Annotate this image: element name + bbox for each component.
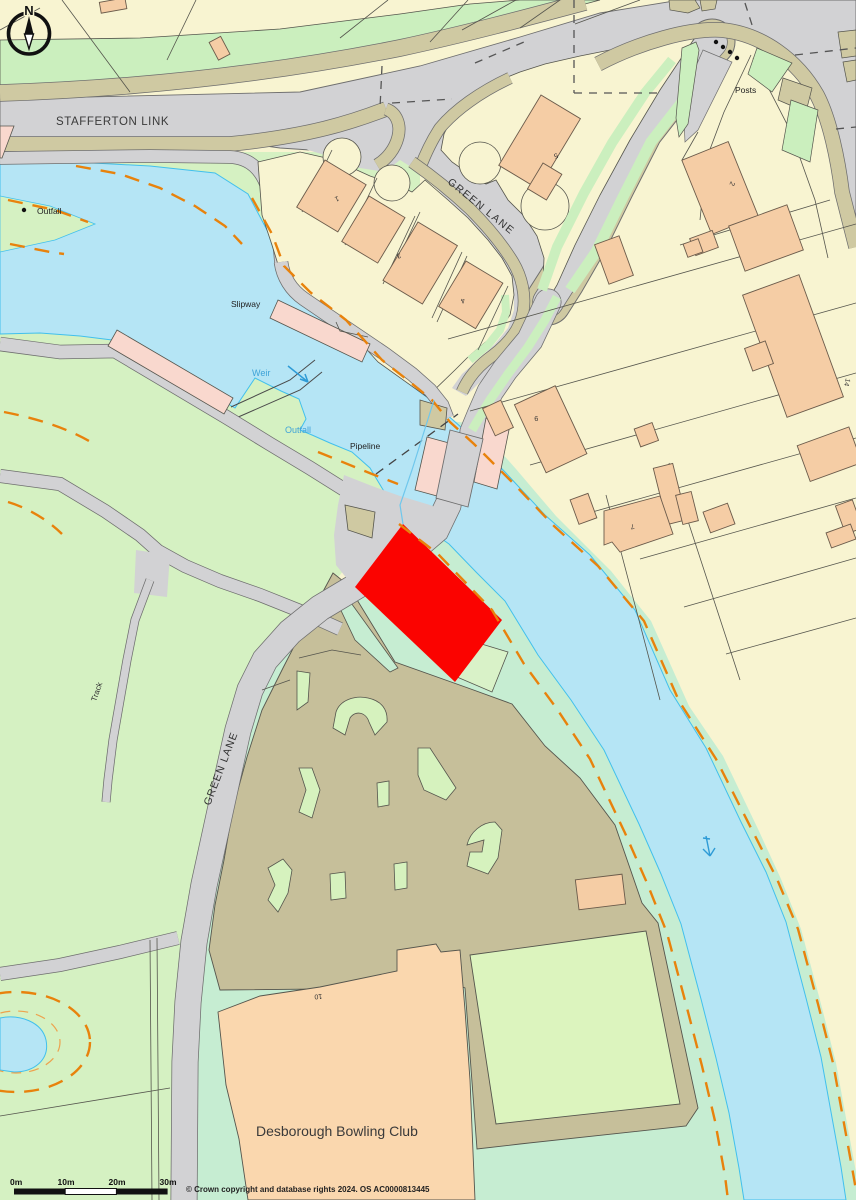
- svg-text:0m: 0m: [10, 1177, 23, 1187]
- svg-text:Posts: Posts: [735, 85, 756, 95]
- svg-text:Outfall: Outfall: [37, 206, 62, 216]
- svg-text:20m: 20m: [108, 1177, 125, 1187]
- svg-text:9: 9: [534, 414, 539, 421]
- svg-text:Pipeline: Pipeline: [350, 441, 381, 451]
- svg-text:Slipway: Slipway: [231, 299, 261, 309]
- svg-text:© Crown copyright and database: © Crown copyright and database rights 20…: [186, 1185, 430, 1194]
- svg-text:Weir: Weir: [252, 368, 270, 378]
- svg-text:STAFFERTON LINK: STAFFERTON LINK: [56, 116, 169, 128]
- svg-text:Desborough Bowling Club: Desborough Bowling Club: [256, 1123, 418, 1139]
- svg-text:Outfall: Outfall: [285, 425, 311, 435]
- svg-text:10m: 10m: [57, 1177, 74, 1187]
- svg-text:10: 10: [314, 992, 322, 1000]
- svg-text:30m: 30m: [159, 1177, 176, 1187]
- svg-text:N: N: [24, 3, 33, 18]
